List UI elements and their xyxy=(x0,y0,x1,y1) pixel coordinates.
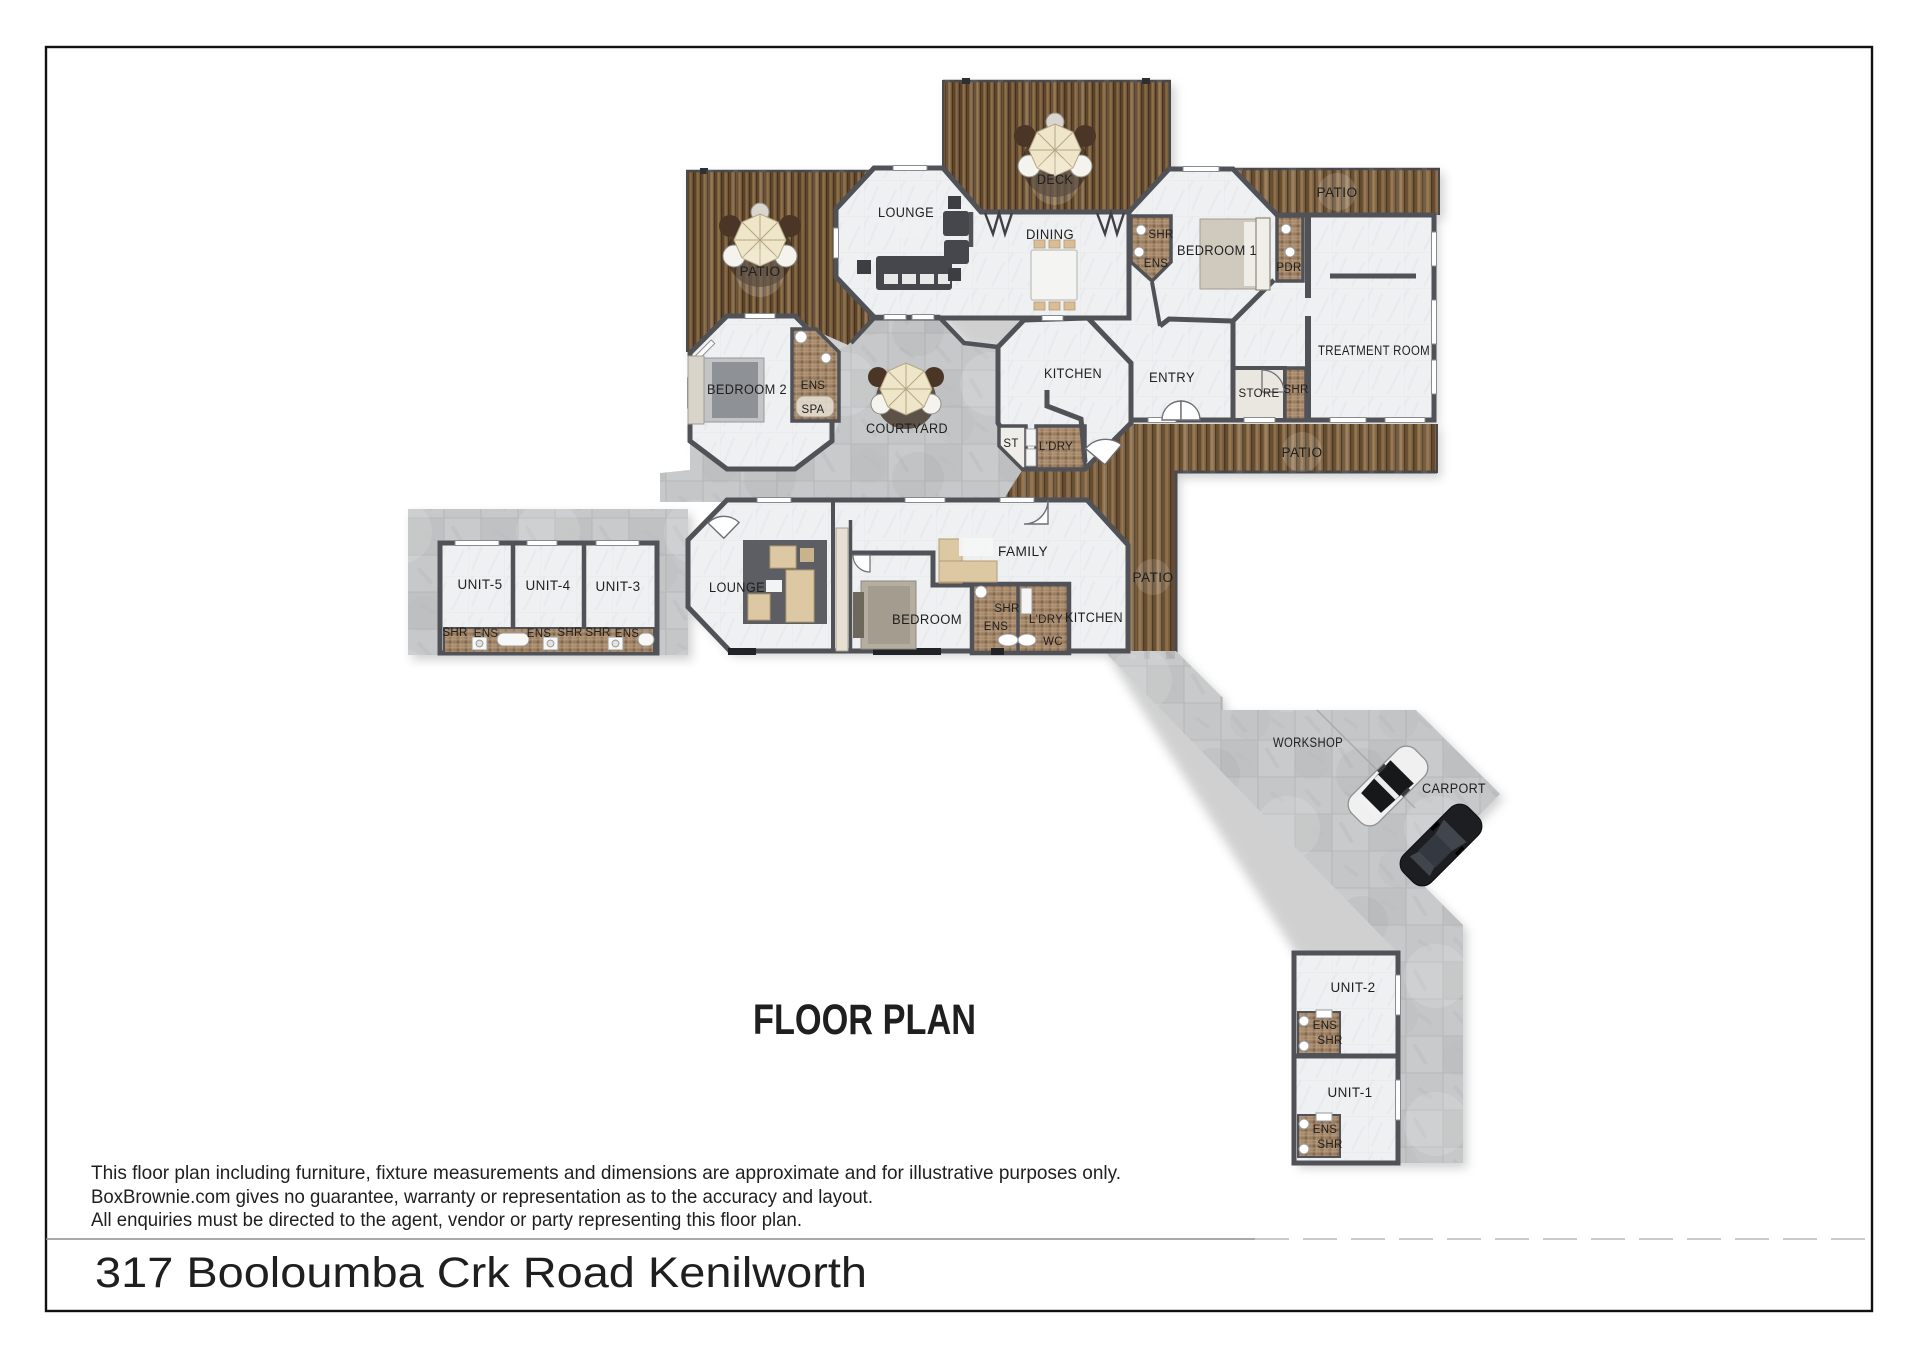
svg-text:SHR: SHR xyxy=(994,603,1019,615)
svg-text:KITCHEN: KITCHEN xyxy=(1065,610,1123,625)
svg-text:FAMILY: FAMILY xyxy=(998,544,1048,559)
svg-text:All enquiries must be directed: All enquiries must be directed to the ag… xyxy=(91,1209,802,1231)
svg-text:ENS: ENS xyxy=(1144,258,1169,270)
svg-text:CARPORT: CARPORT xyxy=(1422,781,1486,796)
svg-text:BEDROOM 2: BEDROOM 2 xyxy=(707,382,787,397)
svg-text:UNIT-2: UNIT-2 xyxy=(1331,980,1376,995)
svg-text:ENS: ENS xyxy=(474,628,499,640)
svg-text:ENTRY: ENTRY xyxy=(1149,370,1195,385)
svg-text:WORKSHOP: WORKSHOP xyxy=(1273,735,1343,750)
svg-text:PATIO: PATIO xyxy=(1133,570,1174,585)
svg-text:PATIO: PATIO xyxy=(1317,185,1358,200)
svg-text:BoxBrownie.com gives no guaran: BoxBrownie.com gives no guarantee, warra… xyxy=(91,1186,873,1208)
svg-text:WC: WC xyxy=(1043,636,1063,648)
svg-text:SHR: SHR xyxy=(442,627,467,639)
svg-text:FLOOR PLAN: FLOOR PLAN xyxy=(753,996,976,1044)
svg-text:DECK: DECK xyxy=(1037,172,1073,187)
svg-text:SHR: SHR xyxy=(1283,384,1308,396)
svg-text:COURTYARD: COURTYARD xyxy=(866,421,948,436)
svg-text:ENS: ENS xyxy=(984,621,1009,633)
svg-text:UNIT-5: UNIT-5 xyxy=(458,577,503,592)
svg-text:SHR: SHR xyxy=(1317,1035,1342,1047)
svg-text:ENS: ENS xyxy=(801,380,826,392)
svg-text:DINING: DINING xyxy=(1026,227,1074,242)
svg-text:STORE: STORE xyxy=(1239,388,1280,400)
svg-text:SPA: SPA xyxy=(801,404,824,416)
svg-text:TREATMENT ROOM: TREATMENT ROOM xyxy=(1318,343,1430,358)
svg-text:ST: ST xyxy=(1003,438,1018,450)
svg-text:317 Booloumba Crk Road Kenilwo: 317 Booloumba Crk Road Kenilworth xyxy=(95,1249,867,1297)
svg-text:ENS: ENS xyxy=(615,628,640,640)
svg-text:L'DRY: L'DRY xyxy=(1029,614,1063,626)
svg-text:PATIO: PATIO xyxy=(740,264,781,279)
svg-text:PATIO: PATIO xyxy=(1282,445,1323,460)
svg-text:UNIT-3: UNIT-3 xyxy=(596,579,641,594)
svg-text:This floor plan including furn: This floor plan including furniture, fix… xyxy=(91,1162,1121,1184)
svg-text:SHR: SHR xyxy=(1317,1139,1342,1151)
svg-text:ENS: ENS xyxy=(1313,1020,1338,1032)
svg-text:LOUNGE: LOUNGE xyxy=(878,205,934,220)
svg-text:UNIT-1: UNIT-1 xyxy=(1328,1085,1373,1100)
svg-text:SHR: SHR xyxy=(1148,229,1173,241)
svg-text:BEDROOM: BEDROOM xyxy=(892,612,962,627)
svg-text:L'DRY: L'DRY xyxy=(1039,441,1073,453)
svg-text:SHR: SHR xyxy=(585,627,610,639)
svg-text:SHR: SHR xyxy=(557,627,582,639)
svg-text:KITCHEN: KITCHEN xyxy=(1044,366,1102,381)
svg-text:ENS: ENS xyxy=(1313,1124,1338,1136)
svg-text:BEDROOM 1: BEDROOM 1 xyxy=(1177,243,1257,258)
svg-text:ENS: ENS xyxy=(527,628,552,640)
svg-text:UNIT-4: UNIT-4 xyxy=(526,578,571,593)
svg-text:LOUNGE: LOUNGE xyxy=(709,580,765,595)
svg-text:PDR: PDR xyxy=(1276,262,1301,274)
